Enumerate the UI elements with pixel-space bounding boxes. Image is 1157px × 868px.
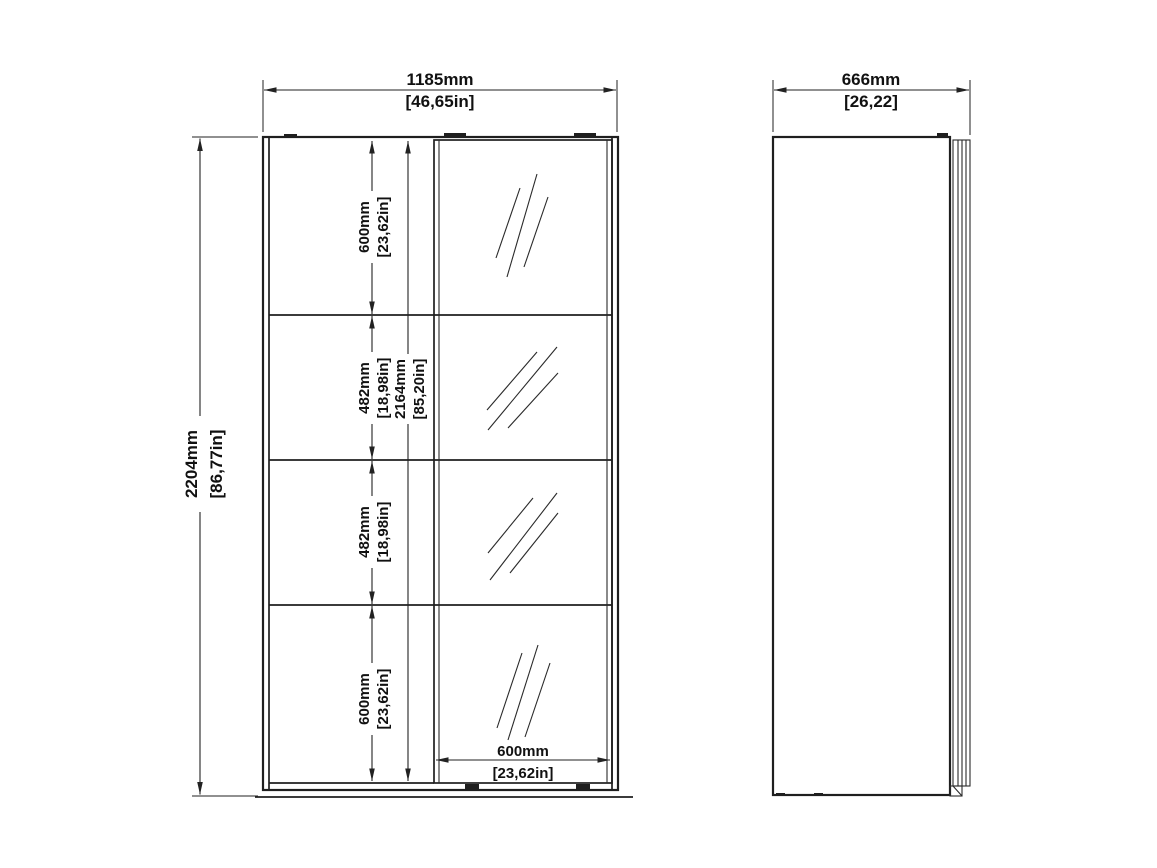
shelf-dimensions: 600mm [23,62in] 482mm [18,98in] 482mm [1… — [354, 141, 394, 781]
mirror-hatch-section-3 — [488, 493, 558, 580]
furniture-dimension-drawing: 1185mm [46,65in] 2204mm [86,77in] 600mm … — [0, 0, 1157, 868]
mirror-hatch-section-2 — [487, 347, 558, 430]
mirror-door — [434, 140, 612, 783]
interior-height-mm-label: 2164mm — [392, 359, 409, 419]
foot — [576, 784, 590, 790]
foot — [776, 793, 785, 796]
side-outline — [773, 133, 950, 796]
front-width-in-label: [46,65in] — [406, 92, 475, 111]
section-4-in-label: [23,62in] — [375, 669, 392, 730]
section-3-in-label: [18,98in] — [375, 502, 392, 563]
front-view: 1185mm [46,65in] 2204mm [86,77in] 600mm … — [181, 70, 633, 797]
door-width-mm-label: 600mm — [497, 743, 549, 760]
mirror-hatch-section-1 — [496, 174, 548, 277]
section-2-in-label: [18,98in] — [375, 358, 392, 419]
section-2-mm-label: 482mm — [356, 362, 373, 414]
side-depth-in-label: [26,22] — [844, 92, 898, 111]
door-width-in-label: [23,62in] — [493, 765, 554, 782]
side-door-edge — [950, 140, 970, 796]
side-view: 666mm [26,22] — [773, 70, 970, 796]
top-fitting-mark — [284, 134, 297, 137]
top-fitting-mark — [574, 133, 596, 137]
section-4-mm-label: 600mm — [356, 673, 373, 725]
technical-drawing-canvas: 1185mm [46,65in] 2204mm [86,77in] 600mm … — [0, 0, 1157, 868]
shelf-lines — [269, 315, 612, 605]
foot — [814, 793, 823, 796]
interior-height-dimension: 2164mm [85,20in] — [391, 141, 429, 781]
section-3-mm-label: 482mm — [356, 506, 373, 558]
section-1-mm-label: 600mm — [356, 201, 373, 253]
width-dimension: 1185mm [46,65in] — [263, 70, 617, 132]
front-width-mm-label: 1185mm — [406, 70, 473, 89]
height-dimension: 2204mm [86,77in] — [181, 137, 258, 796]
top-fitting-mark — [444, 133, 466, 137]
front-height-mm-label: 2204mm — [182, 430, 201, 498]
door-width-dimension: 600mm [23,62in] — [436, 743, 610, 782]
side-depth-mm-label: 666mm — [842, 70, 901, 89]
front-height-in-label: [86,77in] — [207, 430, 226, 499]
cabinet-outline — [255, 133, 633, 797]
mirror-hatch-section-4 — [497, 645, 550, 740]
depth-dimension: 666mm [26,22] — [773, 70, 970, 135]
interior-height-in-label: [85,20in] — [411, 359, 428, 420]
top-fitting-mark — [937, 133, 948, 137]
section-1-in-label: [23,62in] — [375, 197, 392, 258]
foot — [465, 784, 479, 790]
